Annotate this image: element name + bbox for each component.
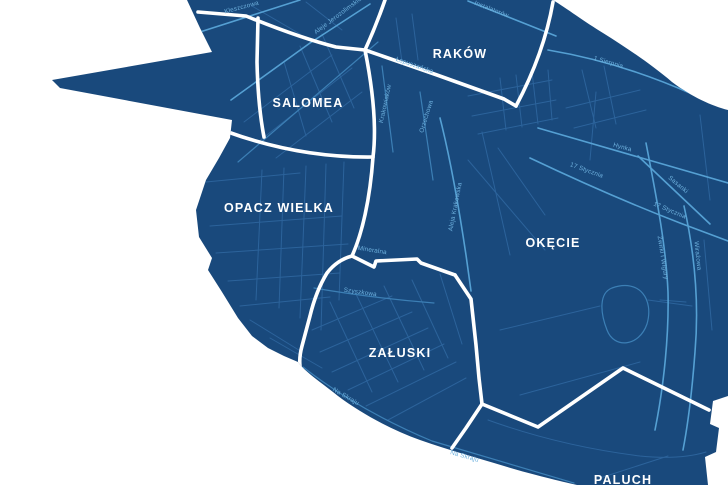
district-label-salomea: SALOMEA: [273, 96, 344, 110]
district-label-okecie: OKĘCIE: [525, 236, 580, 250]
district-label-opacz-wielka: OPACZ WIELKA: [224, 201, 334, 215]
district-label-rakow: RAKÓW: [433, 46, 488, 61]
district-map-stage: Kleszczowa Aleje Jerozolimskie Instalato…: [0, 0, 728, 485]
district-map: Kleszczowa Aleje Jerozolimskie Instalato…: [0, 0, 728, 485]
district-label-zaluski: ZAŁUSKI: [369, 346, 432, 360]
land-area: [52, 0, 728, 485]
district-label-paluch: PALUCH: [594, 473, 652, 485]
